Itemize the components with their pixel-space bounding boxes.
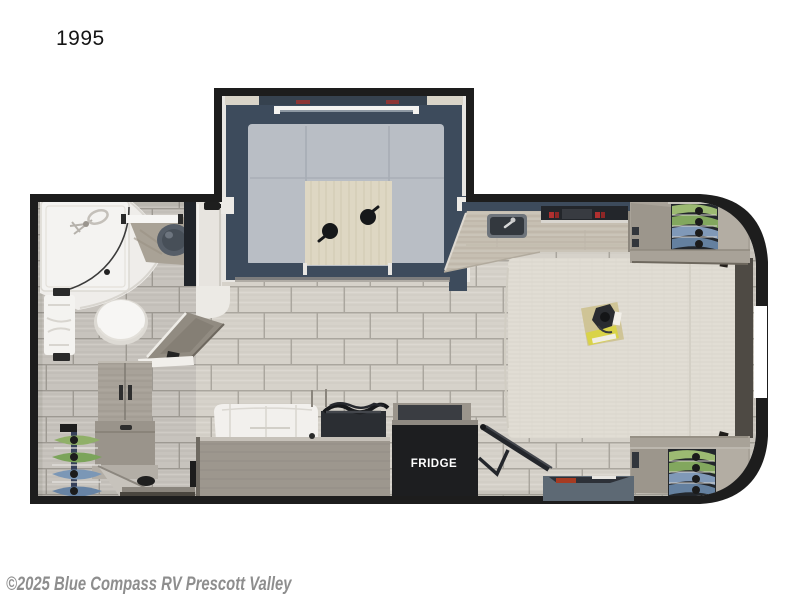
svg-text:FRIDGE: FRIDGE [411, 458, 457, 470]
